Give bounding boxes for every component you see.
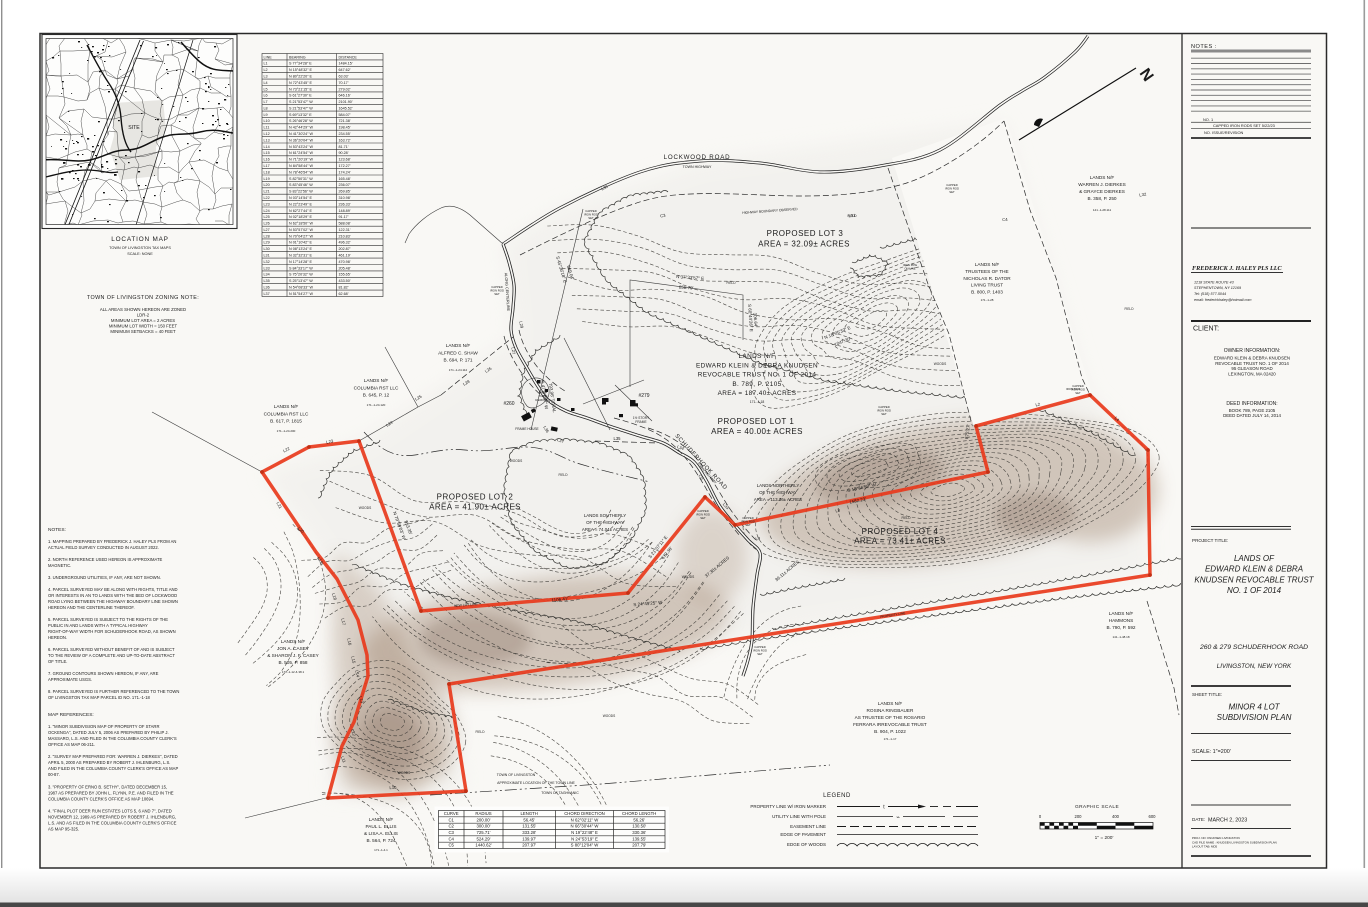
- svg-text:207.79': 207.79': [632, 843, 646, 848]
- svg-text:MINOR 4 LOT: MINOR 4 LOT: [1228, 703, 1280, 712]
- svg-text:AREA = 41.90± ACRES: AREA = 41.90± ACRES: [429, 502, 521, 511]
- svg-text:BEARING: BEARING: [289, 55, 306, 59]
- svg-text:COLUMBIA COUNTY CLERK'S OFFICE: COLUMBIA COUNTY CLERK'S OFFICE AS MAP 10…: [48, 796, 154, 801]
- svg-text:HEREON.: HEREON.: [48, 635, 67, 640]
- svg-text:N 42°44'29" W: N 42°44'29" W: [289, 126, 314, 130]
- svg-text:CLIENT:: CLIENT:: [1193, 326, 1219, 333]
- svg-text:B. 694, P. 171: B. 694, P. 171: [443, 358, 472, 363]
- svg-text:S 84°33'17" W: S 84°33'17" W: [289, 266, 313, 270]
- svg-text:600: 600: [1149, 814, 1157, 819]
- svg-text:70.17': 70.17': [339, 81, 349, 85]
- svg-text:1987 AS PREPARED BY JOHN L. FL: 1987 AS PREPARED BY JOHN L. FLYNN, P.E. …: [48, 790, 174, 795]
- svg-text:L3: L3: [264, 75, 268, 79]
- svg-text:PROPERTY LINE W/ IRON MARKER: PROPERTY LINE W/ IRON MARKER: [750, 804, 826, 809]
- svg-text:N 53°43'24" W: N 53°43'24" W: [289, 145, 314, 149]
- svg-text:DEED DATED JULY 14, 2014: DEED DATED JULY 14, 2014: [1223, 413, 1281, 418]
- svg-text:1″ = 200′: 1″ = 200′: [1095, 835, 1114, 841]
- svg-text:FIELD: FIELD: [558, 473, 568, 477]
- svg-text:WOODS: WOODS: [510, 459, 522, 463]
- svg-text:COLUMBIA RST LLC: COLUMBIA RST LLC: [264, 411, 309, 416]
- svg-text:C1: C1: [448, 817, 454, 822]
- svg-text:CURVE: CURVE: [444, 811, 459, 816]
- svg-text:WOODS: WOODS: [603, 714, 615, 718]
- svg-text:1645.52': 1645.52': [339, 107, 353, 111]
- svg-text:LANDS N/F: LANDS N/F: [739, 353, 776, 360]
- svg-text:L5: L5: [264, 87, 268, 91]
- svg-text:588.08': 588.08': [339, 222, 351, 226]
- svg-text:MINIMUM LOT WIDTH = 150 FEET: MINIMUM LOT WIDTH = 150 FEET: [109, 324, 178, 329]
- svg-text:⌁: ⌁: [896, 815, 900, 821]
- svg-text:B. 617, P. 1815: B. 617, P. 1815: [270, 419, 302, 424]
- svg-text:TOWN OF LIVINGSTON: TOWN OF LIVINGSTON: [497, 773, 536, 777]
- svg-text:CAPPED IRON RODS SET 5/22/23: CAPPED IRON RODS SET 5/22/23: [1213, 123, 1275, 128]
- svg-text:SET: SET: [745, 523, 751, 527]
- svg-text:EDGE OF WOODS: EDGE OF WOODS: [787, 842, 826, 847]
- svg-text:236.33': 236.33': [339, 202, 351, 206]
- svg-text:L31: L31: [264, 254, 270, 258]
- svg-text:FIELD: FIELD: [847, 214, 857, 218]
- svg-text:200.00': 200.00': [477, 817, 491, 822]
- svg-text:62.68': 62.68': [339, 292, 349, 296]
- svg-text:N 61°24'54" W: N 61°24'54" W: [289, 151, 314, 155]
- svg-text:LANDS SOUTHERLY: LANDS SOUTHERLY: [584, 513, 626, 518]
- svg-text:FRAME: FRAME: [635, 420, 646, 424]
- svg-text:OFFICE AS MAP 06-211.: OFFICE AS MAP 06-211.: [48, 742, 95, 747]
- svg-text:198.45': 198.45': [339, 126, 351, 130]
- svg-text:NICHOLAS R. DATOR: NICHOLAS R. DATOR: [963, 276, 1011, 281]
- svg-text:TOWN HIGHWAY: TOWN HIGHWAY: [683, 165, 712, 169]
- svg-text:SET: SET: [700, 516, 706, 520]
- svg-text:LANDS N/F: LANDS N/F: [975, 262, 1000, 267]
- svg-text:LANDS N/F: LANDS N/F: [364, 378, 389, 383]
- svg-text:N 08°13'24" E: N 08°13'24" E: [289, 247, 313, 251]
- svg-text:LANDS N/F: LANDS N/F: [369, 817, 394, 822]
- svg-text:NO. 1 OF 2014: NO. 1 OF 2014: [1227, 586, 1282, 595]
- svg-text:PUBLIC IN AND LANDS WITH A TYP: PUBLIC IN AND LANDS WITH A TYPICAL HIGHW…: [48, 623, 148, 628]
- svg-text:AS MAP 95-325.: AS MAP 95-325.: [48, 827, 79, 832]
- svg-text:TOWN OF LIVINGSTON ZONING NOTE: TOWN OF LIVINGSTON ZONING NOTE:: [87, 295, 199, 301]
- svg-text:SET: SET: [881, 412, 887, 416]
- svg-text:171.-1-24.200: 171.-1-24.200: [277, 429, 296, 433]
- svg-text:NO. ISSUE/REVISION: NO. ISSUE/REVISION: [1204, 130, 1244, 135]
- svg-text:172.27': 172.27': [339, 164, 351, 168]
- svg-text:RADIUS: RADIUS: [475, 811, 491, 816]
- svg-text:433.50': 433.50': [339, 279, 351, 283]
- svg-text:TO THE REVIEW OF A COMPLETE AN: TO THE REVIEW OF A COMPLETE AND UP-TO-DA…: [48, 653, 175, 658]
- svg-text:333.28': 333.28': [522, 830, 536, 835]
- svg-text:S 61°27'30" E: S 61°27'30" E: [289, 94, 312, 98]
- svg-text:91.17': 91.17': [339, 215, 349, 219]
- svg-text:L18: L18: [264, 170, 270, 174]
- svg-text:L12: L12: [264, 132, 270, 136]
- svg-text:AREA = 40.00± ACRES: AREA = 40.00± ACRES: [711, 427, 803, 436]
- svg-text:CHORD DIRECTION: CHORD DIRECTION: [564, 811, 605, 816]
- svg-text:461.19': 461.19': [339, 254, 351, 258]
- svg-text:207.97': 207.97': [522, 843, 536, 848]
- svg-text:L32: L32: [1139, 191, 1147, 197]
- svg-text:L23: L23: [264, 202, 270, 206]
- svg-text:B. 904, P. 1022: B. 904, P. 1022: [874, 729, 906, 734]
- svg-text:FIELD: FIELD: [1124, 307, 1134, 311]
- svg-text:S 75°20'32" W: S 75°20'32" W: [289, 273, 313, 277]
- svg-text:APRIL 5, 2000 AS PREPARED BY R: APRIL 5, 2000 AS PREPARED BY ROBERT J. I…: [48, 760, 170, 765]
- svg-text:OF TITLE.: OF TITLE.: [48, 659, 67, 664]
- svg-text:400: 400: [1112, 814, 1120, 819]
- svg-text:L26: L26: [264, 222, 270, 226]
- svg-text:PROPOSED LOT 3: PROPOSED LOT 3: [767, 229, 844, 238]
- svg-text:210.83': 210.83': [339, 234, 351, 238]
- svg-text:NO. 1: NO. 1: [1203, 117, 1213, 122]
- svg-text:SET: SET: [949, 190, 955, 194]
- svg-text:N 01°10'42" E: N 01°10'42" E: [289, 241, 313, 245]
- svg-text:SCALE: 1″=200′: SCALE: 1″=200′: [1192, 749, 1231, 755]
- svg-text:5. PARCEL SURVEYED IS SUBJEC: 5. PARCEL SURVEYED IS SUBJECT TO THE RIG…: [48, 617, 168, 622]
- svg-text:647.62': 647.62': [339, 68, 351, 72]
- svg-text:L10: L10: [389, 785, 397, 790]
- svg-text:LDR-2: LDR-2: [137, 313, 150, 318]
- svg-text:REVOCABLE TRUST NO. 1 OF 2014: REVOCABLE TRUST NO. 1 OF 2014: [1215, 361, 1289, 366]
- svg-text:LANDS N/F: LANDS N/F: [1109, 611, 1134, 616]
- svg-text:S 80°12'04" W: S 80°12'04" W: [571, 843, 600, 848]
- svg-text:L35: L35: [614, 436, 622, 441]
- svg-text:LIVING TRUST: LIVING TRUST: [971, 283, 1003, 288]
- svg-text:L19: L19: [264, 177, 270, 181]
- svg-text:306.64′: 306.64′: [752, 312, 758, 327]
- svg-text:L34: L34: [264, 273, 270, 277]
- svg-text:B. 358, P. 250: B. 358, P. 250: [1087, 196, 1116, 201]
- svg-text:N 41°30'24" W: N 41°30'24" W: [289, 132, 314, 136]
- svg-text:S 69°13'32" E: S 69°13'32" E: [289, 113, 312, 117]
- svg-text:AREA = 73.41± ACRES: AREA = 73.41± ACRES: [854, 536, 946, 545]
- svg-text:BOOK 789, PAGE 2105: BOOK 789, PAGE 2105: [1229, 408, 1276, 413]
- svg-text:6. PARCEL SURVEYED WITHOUT B: 6. PARCEL SURVEYED WITHOUT BENEFIT OF AN…: [48, 647, 175, 652]
- svg-text:AND FILED IN THE COLUMBIA COUN: AND FILED IN THE COLUMBIA COUNTY CLERK'S…: [48, 766, 178, 771]
- svg-text:B. 790, P. 592: B. 790, P. 592: [1106, 625, 1135, 630]
- svg-text:N 32°32'31" E: N 32°32'31" E: [289, 254, 313, 258]
- svg-text:139.97': 139.97': [522, 836, 536, 841]
- svg-text:N 24°53'19" E: N 24°53'19" E: [571, 836, 598, 841]
- svg-text:LENGTH: LENGTH: [520, 811, 537, 816]
- svg-text:SET: SET: [494, 292, 500, 296]
- svg-text:1440.62': 1440.62': [475, 843, 492, 848]
- svg-text:N 51°54'27" W: N 51°54'27" W: [289, 292, 314, 296]
- svg-text:L29: L29: [264, 241, 270, 245]
- svg-text:EDWARD KLEIN & DEBRA KNUDSEN: EDWARD KLEIN & DEBRA KNUDSEN: [696, 362, 818, 369]
- svg-text:OF LIVINGSTON TAX MAP PARCEL I: OF LIVINGSTON TAX MAP PARCEL ID NO. 171.…: [48, 695, 151, 700]
- svg-text:MASSARO, L.S. AND FILED IN THE: MASSARO, L.S. AND FILED IN THE COLUMBIA …: [48, 736, 177, 741]
- svg-text:7. GROUND CONTOURS SHOWN HER: 7. GROUND CONTOURS SHOWN HEREON, IF ANY,…: [48, 671, 159, 676]
- svg-text:N 62°27'44" E: N 62°27'44" E: [289, 209, 313, 213]
- svg-text:95 GLEASON ROAD: 95 GLEASON ROAD: [1231, 366, 1272, 371]
- svg-text:330.36': 330.36': [632, 830, 646, 835]
- svg-text:FERRARA IRREVOCABLE TRUST: FERRARA IRREVOCABLE TRUST: [853, 722, 927, 727]
- svg-text:310.98': 310.98': [339, 196, 351, 200]
- svg-text:WOODS: WOODS: [934, 362, 946, 366]
- svg-text:C3: C3: [448, 830, 454, 835]
- svg-text:N 66°30'44" W: N 66°30'44" W: [571, 824, 600, 829]
- svg-text:N 70°04'27" W: N 70°04'27" W: [289, 234, 314, 238]
- svg-text:C4: C4: [448, 836, 454, 841]
- svg-text:L.S. AND AS FILED IN THE COLUM: L.S. AND AS FILED IN THE COLUMBIA COUNTY…: [48, 821, 177, 826]
- svg-text:L27: L27: [511, 347, 517, 355]
- svg-text:1218 STATE ROUTE 43: 1218 STATE ROUTE 43: [1194, 281, 1235, 285]
- svg-text:WOODS: WOODS: [682, 575, 694, 579]
- svg-text:OF THE HIGHWAY: OF THE HIGHWAY: [586, 520, 624, 525]
- svg-text:N 03°14'54" E: N 03°14'54" E: [289, 196, 313, 200]
- svg-text:S 83°22'56" W: S 83°22'56" W: [289, 190, 313, 194]
- svg-text:L24: L24: [264, 209, 270, 213]
- svg-text:S 82°50'31" W: S 82°50'31" W: [289, 177, 313, 181]
- svg-text:300.00': 300.00': [477, 824, 491, 829]
- svg-text:OF THE HIGHWAY: OF THE HIGHWAY: [759, 490, 797, 495]
- svg-text:8. PARCEL SURVEYED IS FURTHE: 8. PARCEL SURVEYED IS FURTHER REFERENCED…: [48, 689, 179, 694]
- svg-text:LANDS N/F: LANDS N/F: [878, 701, 903, 706]
- svg-text:B. 564, P. 724: B. 564, P. 724: [366, 838, 395, 843]
- svg-text:S 77°34'28" E: S 77°34'28" E: [289, 62, 312, 66]
- svg-text:L15: L15: [264, 151, 270, 155]
- svg-text:N 19°22'48" E: N 19°22'48" E: [571, 830, 598, 835]
- svg-text:N 72°43'45" E: N 72°43'45" E: [289, 81, 313, 85]
- svg-text:FIELD: FIELD: [901, 516, 911, 520]
- svg-text:AREA = 74.04± ACRES: AREA = 74.04± ACRES: [582, 527, 628, 532]
- svg-text:L6: L6: [264, 94, 268, 98]
- svg-text:L16: L16: [264, 158, 270, 162]
- svg-text:725.71': 725.71': [477, 830, 491, 835]
- svg-text:L33: L33: [264, 266, 270, 270]
- svg-text:L4: L4: [264, 81, 268, 85]
- svg-text:N 17°14'28" E: N 17°14'28" E: [289, 260, 313, 264]
- svg-text:ALL AREAS SHOWN HEREON ARE ZON: ALL AREAS SHOWN HEREON ARE ZONED: [100, 307, 186, 312]
- svg-text:00-87.: 00-87.: [48, 772, 60, 777]
- svg-text:S 21°53'47" W: S 21°53'47" W: [289, 107, 313, 111]
- svg-text:S 25°13'47" W: S 25°13'47" W: [289, 279, 313, 283]
- svg-text:OCKENGA", DATED JULY 5, 2006 A: OCKENGA", DATED JULY 5, 2006 AS PREPARED…: [48, 730, 169, 735]
- svg-text:LOCKWOOD ROAD: LOCKWOOD ROAD: [664, 154, 731, 161]
- svg-text:DISTANCE: DISTANCE: [339, 55, 358, 59]
- svg-text:1. "MINOR SUBDIVISION MAP OF: 1. "MINOR SUBDIVISION MAP OF PROPERTY OF…: [48, 724, 159, 729]
- svg-text:171.-1-4.1: 171.-1-4.1: [374, 848, 388, 852]
- svg-text:56.26': 56.26': [633, 817, 645, 822]
- svg-text:56.45': 56.45': [523, 817, 535, 822]
- svg-text:171.-1-12 & 38.1: 171.-1-12 & 38.1: [282, 670, 305, 674]
- svg-text:MAGNETIC.: MAGNETIC.: [48, 563, 71, 568]
- svg-text:B. 645, P. 12: B. 645, P. 12: [363, 393, 390, 398]
- svg-text:N 62°18'50" W: N 62°18'50" W: [289, 222, 314, 226]
- svg-text:WOODS: WOODS: [359, 506, 371, 510]
- svg-text:N 36°20'04" W: N 36°20'04" W: [289, 138, 314, 142]
- svg-text:S 26°46'28" W: S 26°46'28" W: [289, 119, 313, 123]
- svg-text:LINE: LINE: [264, 55, 273, 59]
- svg-text:L9: L9: [264, 113, 268, 117]
- svg-text:TRUSTEES OF THE: TRUSTEES OF THE: [965, 269, 1008, 274]
- svg-text:L8: L8: [264, 107, 268, 111]
- svg-text:236.07': 236.07': [339, 183, 351, 187]
- svg-text:ACTUAL FIELD SURVEY CONDUCTED: ACTUAL FIELD SURVEY CONDUCTED IN AUGUST …: [48, 545, 159, 550]
- svg-text:B. 800, P. 1403: B. 800, P. 1403: [971, 290, 1003, 295]
- svg-text:SITE: SITE: [128, 125, 140, 131]
- svg-text:B. 789, P. 2105: B. 789, P. 2105: [732, 381, 781, 388]
- svg-text:L7: L7: [264, 100, 268, 104]
- svg-text:N 84°58'44" W: N 84°58'44" W: [289, 164, 314, 168]
- svg-text:131.55': 131.55': [522, 824, 536, 829]
- svg-text:ON-LINE: ON-LINE: [904, 267, 915, 271]
- svg-text:496.32': 496.32': [339, 241, 351, 245]
- svg-text:N 62°02'11" W: N 62°02'11" W: [571, 817, 600, 822]
- svg-text:NOTES :: NOTES :: [1191, 44, 1217, 50]
- svg-text:COLUMBIA RST LLC: COLUMBIA RST LLC: [354, 385, 399, 390]
- svg-text:4. PARCEL SURVEYED MAY BE AL: 4. PARCEL SURVEYED MAY BE ALONG WITH RIG…: [48, 587, 178, 592]
- svg-text:LANDS N/F: LANDS N/F: [281, 639, 306, 644]
- svg-text:LEXINGTON, MA 02420: LEXINGTON, MA 02420: [1228, 371, 1276, 376]
- svg-text:171.-1-18: 171.-1-18: [750, 400, 765, 404]
- svg-text:DEED INFORMATION:: DEED INFORMATION:: [1226, 401, 1277, 407]
- svg-text:AS TRUSTEE OF THE ROSARIO: AS TRUSTEE OF THE ROSARIO: [855, 715, 926, 720]
- svg-text:C2: C2: [448, 824, 454, 829]
- svg-text:148.89': 148.89': [339, 209, 351, 213]
- svg-text:141.-1-48.18: 141.-1-48.18: [1112, 635, 1129, 639]
- svg-text:FIELD: FIELD: [475, 730, 485, 734]
- svg-text:NOTES:: NOTES:: [48, 527, 66, 533]
- svg-text:ROAD LYING BETWEEN THE HIGHWAY: ROAD LYING BETWEEN THE HIGHWAY BOUNDARY …: [48, 599, 178, 604]
- svg-text:L35: L35: [264, 279, 270, 283]
- svg-text:PROPOSED LOT 1: PROPOSED LOT 1: [718, 417, 795, 426]
- svg-text:WOODS: WOODS: [398, 771, 410, 775]
- svg-text:3. "PROPERTY OF ERNO B. SETH: 3. "PROPERTY OF ERNO B. SETHY", DATED DE…: [48, 784, 167, 789]
- svg-text:200: 200: [1075, 814, 1083, 819]
- svg-text:LIVINGSTON, NEW YORK: LIVINGSTON, NEW YORK: [1217, 663, 1292, 670]
- svg-text:PROPOSED LOT 2: PROPOSED LOT 2: [437, 493, 514, 502]
- svg-text:N 73°21'15" E: N 73°21'15" E: [289, 87, 313, 91]
- svg-text:AREA = 187.40± ACRES: AREA = 187.40± ACRES: [718, 390, 797, 397]
- svg-text:LANDS N/F: LANDS N/F: [446, 343, 471, 348]
- svg-text:2101.90': 2101.90': [339, 100, 353, 104]
- svg-text:PROJECT TITLE:: PROJECT TITLE:: [1192, 538, 1228, 543]
- svg-text:269.85': 269.85': [339, 190, 351, 194]
- svg-text:APPROXIMATE LOCATION OF THE TO: APPROXIMATE LOCATION OF THE TOWN LINE: [497, 781, 575, 785]
- svg-text:LOCATION MAP: LOCATION MAP: [111, 236, 168, 243]
- svg-text:MARCH 2, 2023: MARCH 2, 2023: [1208, 818, 1247, 824]
- svg-text:UTILITY LINE WITH POLE: UTILITY LINE WITH POLE: [772, 814, 826, 819]
- svg-text:N 54°08'33" W: N 54°08'33" W: [289, 286, 314, 290]
- svg-text:#279: #279: [638, 393, 649, 399]
- svg-text:163.72': 163.72': [339, 138, 351, 142]
- svg-text:PROPOSED LOT 4: PROPOSED LOT 4: [862, 527, 939, 536]
- svg-text:123.68': 123.68': [339, 158, 351, 162]
- svg-text:ROSINA RINGBAUER: ROSINA RINGBAUER: [867, 708, 914, 713]
- svg-text:OWNER INFORMATION:: OWNER INFORMATION:: [1224, 348, 1281, 354]
- svg-text:4. "FINAL PLOT DEER RUN ESTA: 4. "FINAL PLOT DEER RUN ESTATES LOTS 5, …: [48, 809, 172, 814]
- svg-text:L25: L25: [264, 215, 270, 219]
- svg-text:171.-1-24.112: 171.-1-24.112: [449, 368, 468, 372]
- svg-text:FIELD: FIELD: [726, 281, 736, 285]
- svg-text:EDGE OF PAVEMENT: EDGE OF PAVEMENT: [780, 832, 826, 837]
- svg-text:171.-1-24.120: 171.-1-24.120: [367, 403, 386, 407]
- svg-text:171.-1-28: 171.-1-28: [981, 298, 994, 302]
- svg-text:JON A. CASEY: JON A. CASEY: [277, 646, 310, 651]
- svg-text:646.16': 646.16': [339, 94, 351, 98]
- svg-text:TOWN OF TAGHKANIC: TOWN OF TAGHKANIC: [541, 791, 579, 795]
- svg-text:L37: L37: [264, 292, 270, 296]
- svg-text:155.65': 155.65': [339, 273, 351, 277]
- svg-text:L20: L20: [264, 183, 270, 187]
- svg-text:N 71°20'19" W: N 71°20'19" W: [289, 158, 314, 162]
- svg-text:ALFRED C. SHAW: ALFRED C. SHAW: [438, 350, 478, 355]
- svg-text:524.29': 524.29': [477, 836, 491, 841]
- svg-text:L30: L30: [264, 247, 270, 251]
- svg-text:L1: L1: [264, 62, 268, 66]
- svg-text:OR INTERESTS IN AN TO LANDS WI: OR INTERESTS IN AN TO LANDS WITH THE BED…: [48, 593, 177, 598]
- svg-text:WARREN J. DIERKES: WARREN J. DIERKES: [1078, 182, 1126, 187]
- svg-text:L32: L32: [264, 260, 270, 264]
- svg-text:L22: L22: [264, 196, 270, 200]
- svg-text:CHORD LENGTH: CHORD LENGTH: [622, 811, 656, 816]
- svg-text:1484.15': 1484.15': [339, 62, 353, 66]
- svg-text:C4: C4: [1002, 217, 1008, 222]
- svg-text:L17: L17: [264, 164, 270, 168]
- svg-text:LAYOUT TAB: MD5: LAYOUT TAB: MD5: [1192, 845, 1218, 849]
- svg-text:S 21°53'47" W: S 21°53'47" W: [289, 100, 313, 104]
- svg-text:L13: L13: [264, 138, 270, 142]
- svg-text:L27: L27: [264, 228, 270, 232]
- svg-text:& SHARON J. F. CASEY: & SHARON J. F. CASEY: [267, 653, 319, 658]
- svg-text:N 80°22'20" E: N 80°22'20" E: [289, 75, 313, 79]
- svg-text:DATE:: DATE:: [1192, 817, 1205, 822]
- svg-text:HAMMONS: HAMMONS: [1109, 618, 1133, 623]
- svg-text:L11: L11: [264, 126, 270, 130]
- svg-text:SET: SET: [1075, 391, 1081, 395]
- svg-text:81.82': 81.82': [339, 286, 349, 290]
- svg-text:LANDS NORTHERLY: LANDS NORTHERLY: [757, 483, 800, 488]
- svg-text:3. UNDERGROUND UTILITIES, IF: 3. UNDERGROUND UTILITIES, IF ANY, ARE NO…: [48, 575, 161, 580]
- svg-text:& LISA A. ELLIS: & LISA A. ELLIS: [364, 831, 398, 836]
- svg-text:EASEMENT LINE: EASEMENT LINE: [790, 824, 826, 829]
- svg-text:EDWARD KLEIN & DEBRA KNUDSEN: EDWARD KLEIN & DEBRA KNUDSEN: [1214, 356, 1290, 361]
- svg-text:81.71': 81.71': [339, 145, 349, 149]
- svg-text:N 15°48'32" E: N 15°48'32" E: [289, 68, 313, 72]
- svg-text:S 83°45'46" W: S 83°45'46" W: [289, 183, 313, 187]
- svg-text:KNUDSEN REVOCABLE TRUST: KNUDSEN REVOCABLE TRUST: [1194, 575, 1314, 584]
- svg-text:C5: C5: [448, 843, 454, 848]
- svg-text:#260: #260: [503, 401, 514, 407]
- svg-text:RIGHT-OF-WAY WIDTH FOR SCHUDER: RIGHT-OF-WAY WIDTH FOR SCHUDERHOOK ROAD,…: [48, 629, 176, 634]
- svg-text:L21: L21: [264, 190, 270, 194]
- svg-text:GRAPHIC SCALE: GRAPHIC SCALE: [1075, 804, 1119, 810]
- svg-text:205.48': 205.48': [339, 266, 351, 270]
- svg-text:N 53°57'02" W: N 53°57'02" W: [289, 228, 314, 232]
- svg-text:584.07': 584.07': [339, 113, 351, 117]
- svg-text:202.87': 202.87': [339, 247, 351, 251]
- svg-text:N 78°46'54" W: N 78°46'54" W: [289, 170, 314, 174]
- svg-text:email: frederickhaley@hotmail.: email: frederickhaley@hotmail.com: [1194, 298, 1251, 302]
- svg-text:234.55': 234.55': [339, 132, 351, 136]
- svg-text:APPROXIMATE USGS.: APPROXIMATE USGS.: [48, 677, 92, 682]
- svg-text:MINIMUM LOT AREA = 2 ACRES: MINIMUM LOT AREA = 2 ACRES: [111, 318, 175, 323]
- svg-text:LANDS N/F: LANDS N/F: [274, 404, 299, 409]
- svg-text:SCALE: NONE: SCALE: NONE: [127, 252, 153, 256]
- svg-text:N 02°18'29" E: N 02°18'29" E: [289, 215, 313, 219]
- svg-text:Tel: (518) 577-5044: Tel: (518) 577-5044: [1194, 292, 1226, 296]
- svg-text:LANDS N/F: LANDS N/F: [1090, 175, 1115, 180]
- svg-text:N 22°23'49" E: N 22°23'49" E: [289, 202, 313, 206]
- svg-text:LANDS OF: LANDS OF: [1234, 554, 1275, 563]
- svg-text:& GRAYCE DIERKES: & GRAYCE DIERKES: [1079, 189, 1125, 194]
- svg-text:AREA = 113.36± ACRES: AREA = 113.36± ACRES: [754, 497, 802, 502]
- svg-text:SET: SET: [757, 652, 763, 656]
- svg-text:1. MAPPING PREPARED BY FREDE: 1. MAPPING PREPARED BY FREDERICK J. HALE…: [48, 539, 176, 544]
- svg-text:FRAME HOUSE: FRAME HOUSE: [515, 427, 538, 431]
- svg-text:90.28': 90.28': [339, 151, 349, 155]
- svg-text:260 & 279 SCHUDERHOOK ROAD: 260 & 279 SCHUDERHOOK ROAD: [1199, 644, 1308, 651]
